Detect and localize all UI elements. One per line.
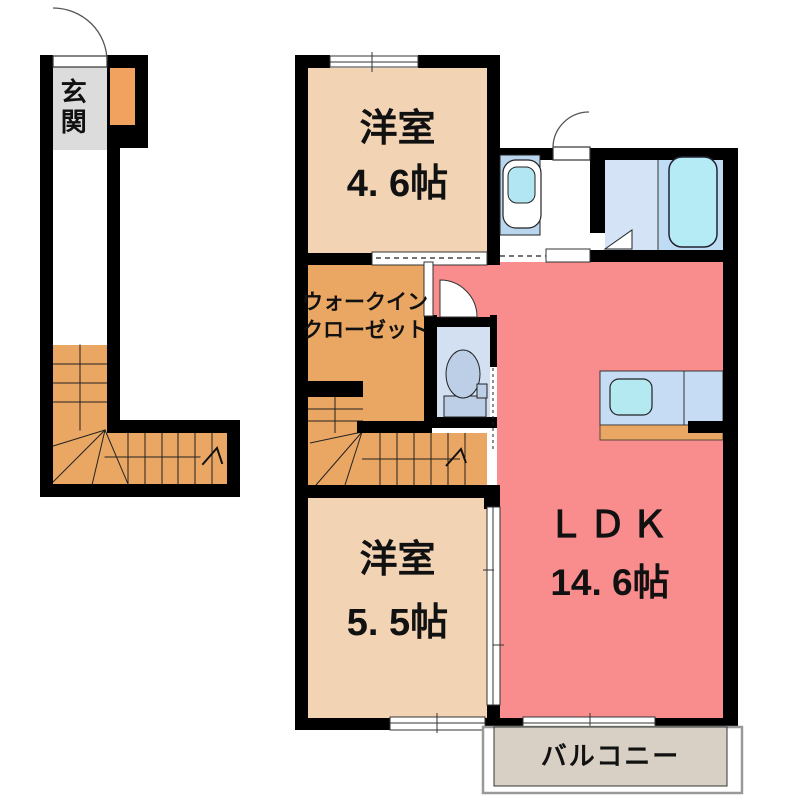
door-swing-icon bbox=[53, 8, 107, 61]
ldk-label: ＬＤＫ bbox=[497, 506, 723, 545]
entrance-label: 玄関 bbox=[58, 78, 85, 138]
bedroom1-label: 洋室 bbox=[308, 110, 487, 150]
ldk-floor bbox=[497, 262, 723, 722]
washbasin-icon bbox=[500, 155, 541, 235]
bedroom1-floor bbox=[308, 68, 487, 253]
balcony-label: バルコニー bbox=[494, 743, 727, 770]
bathtub-icon bbox=[669, 157, 717, 247]
ldk-size: 14. 6帖 bbox=[497, 564, 723, 603]
external-staircase bbox=[50, 345, 227, 485]
door-leaf bbox=[53, 56, 107, 67]
kitchen-sink-icon bbox=[610, 379, 652, 415]
wall-stub bbox=[688, 421, 723, 433]
walk-in-closet-floor-ext bbox=[360, 385, 428, 425]
entrance-door bbox=[53, 8, 107, 67]
bedroom1-size: 4. 6帖 bbox=[308, 165, 487, 205]
floorplan: 玄関 洋室 4. 6帖 ウォークイン クローゼット 洋室 5. 5帖 ＬＤＫ 1… bbox=[0, 0, 800, 800]
walk-in-closet-label-line1: ウォークイン bbox=[300, 292, 430, 314]
kitchen-counter bbox=[600, 371, 723, 440]
shoe-cabinet bbox=[110, 68, 135, 125]
door-swing-icon bbox=[553, 112, 589, 148]
washroom-south-door bbox=[546, 249, 590, 262]
bedroom2-size: 5. 5帖 bbox=[308, 604, 487, 644]
bedroom2-label: 洋室 bbox=[308, 541, 487, 581]
divider-wall bbox=[107, 62, 110, 125]
walk-in-closet-label-line2: クローゼット bbox=[300, 320, 430, 342]
washroom-entry-door bbox=[553, 112, 590, 160]
